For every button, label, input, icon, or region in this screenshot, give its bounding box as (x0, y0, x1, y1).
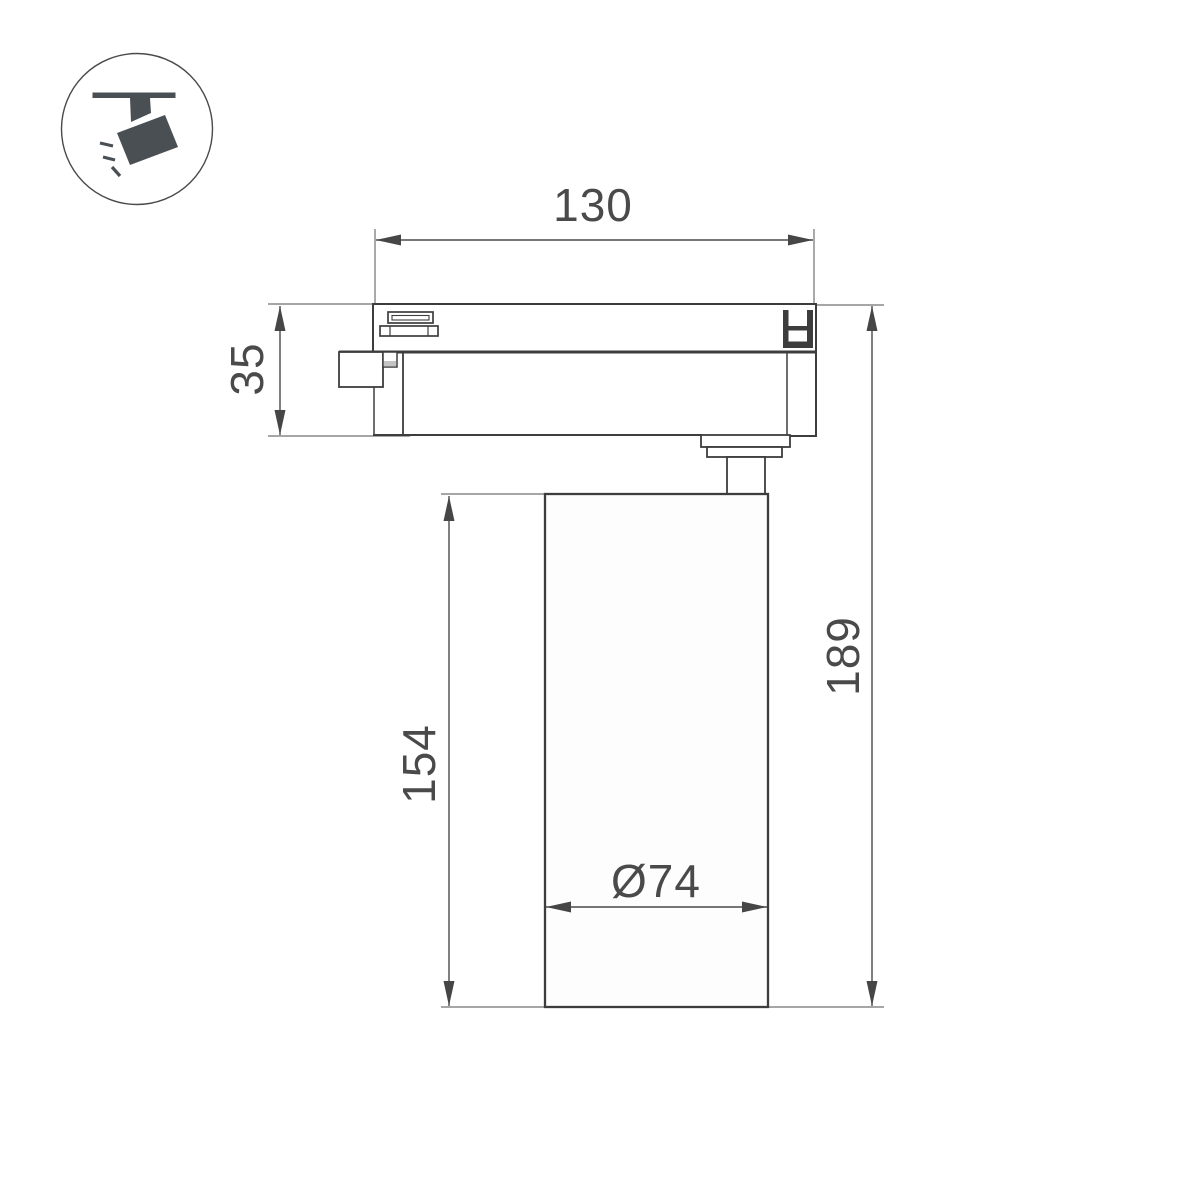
dim-line-130 (376, 235, 813, 246)
adapter-latch-step-shading (384, 361, 396, 367)
track-clip-upper (388, 312, 433, 323)
arrow-154-bottom (444, 981, 455, 1006)
track-adapter (339, 304, 816, 437)
dimension-label-track-width: 130 (493, 175, 693, 235)
adapter-lower-section (373, 352, 816, 437)
dimension-label-diameter: Ø74 (556, 851, 756, 911)
track-spotlight-icon (62, 54, 213, 205)
arrow-189-top (867, 306, 878, 331)
dimension-label-adapter-height: 35 (217, 309, 277, 429)
mount-step-1 (701, 435, 790, 447)
track-clip-lower (380, 326, 438, 336)
icon-track-bar (93, 93, 176, 99)
drawing-canvas: 130 35 154 189 Ø74 (0, 0, 1200, 1200)
arrow-189-bottom (867, 981, 878, 1006)
adapter-top-section (373, 304, 816, 352)
mount-step-2 (707, 447, 782, 457)
dimension-label-body-height: 154 (389, 689, 449, 839)
mount-stem (727, 457, 765, 495)
mounting-knuckle (701, 435, 790, 495)
adapter-latch (339, 352, 383, 387)
dimension-label-total-height: 189 (813, 581, 873, 731)
arrow-130-right (788, 235, 813, 246)
arrow-130-left (376, 235, 401, 246)
arrow-154-top (444, 496, 455, 521)
lamp-body-cylinder (545, 494, 768, 1007)
